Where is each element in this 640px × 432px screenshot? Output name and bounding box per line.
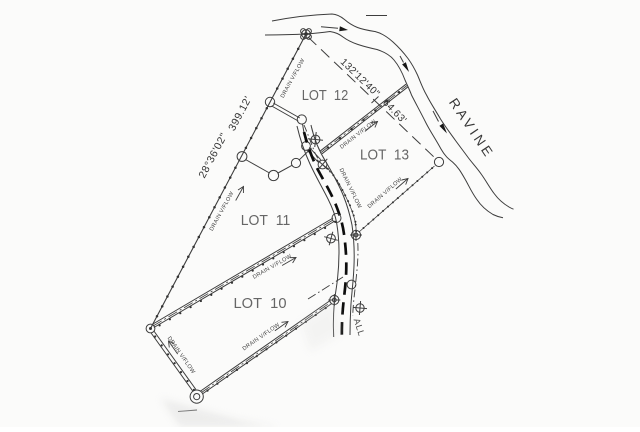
svg-text:LOT 11: LOT 11 <box>241 212 291 229</box>
svg-text:LOT 12: LOT 12 <box>302 87 349 104</box>
svg-text:LOT 13: LOT 13 <box>360 147 409 164</box>
svg-text:LOT 10: LOT 10 <box>234 295 287 312</box>
